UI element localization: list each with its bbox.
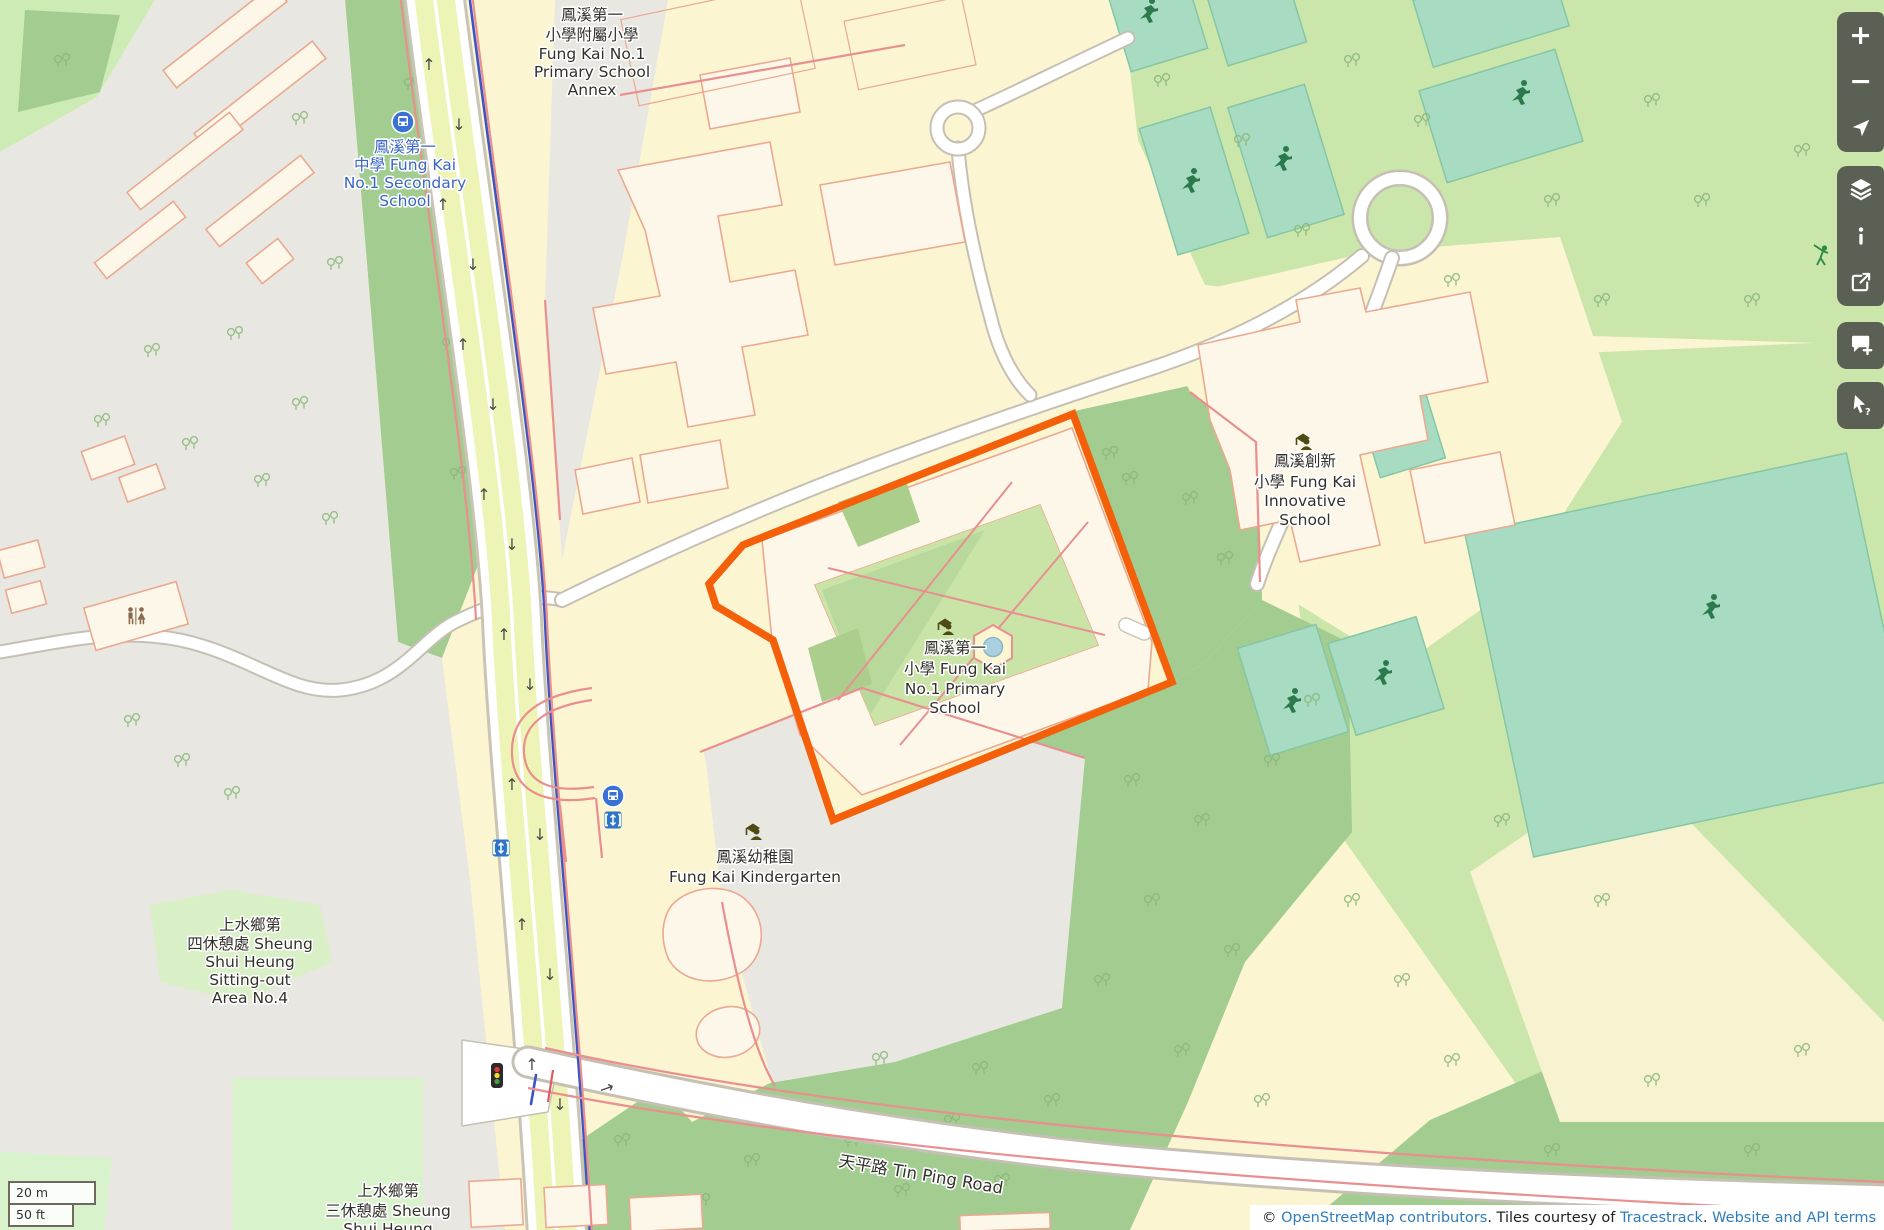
tiles-courtesy-text: . Tiles courtesy of: [1487, 1210, 1620, 1226]
layers-button[interactable]: [1837, 166, 1884, 213]
svg-text:↓: ↓: [533, 825, 546, 844]
share-icon: [1849, 271, 1872, 294]
svg-text:中學 Fung Kai: 中學 Fung Kai: [354, 155, 456, 174]
svg-text:↓: ↓: [523, 675, 536, 694]
svg-text:三休憩處 Sheung: 三休憩處 Sheung: [325, 1202, 451, 1220]
add-note-button[interactable]: [1837, 322, 1884, 369]
scale-bar: 20 m 50 ft: [8, 1181, 96, 1227]
attribution-bar: © OpenStreetMap contributors. Tiles cour…: [1250, 1205, 1884, 1230]
svg-text:↓: ↓: [486, 395, 499, 414]
map-tools-group: [1837, 166, 1884, 306]
terms-link[interactable]: Website and API terms: [1712, 1210, 1876, 1226]
copyright-symbol: ©: [1262, 1210, 1281, 1226]
minus-icon: −: [1849, 68, 1872, 95]
info-icon: [1850, 225, 1872, 247]
svg-text:School: School: [1279, 511, 1330, 529]
svg-text:鳳溪創新: 鳳溪創新: [1274, 452, 1336, 470]
layers-icon: [1849, 177, 1873, 201]
svg-text:Annex: Annex: [568, 81, 617, 99]
query-group: ?: [1837, 382, 1884, 429]
svg-text:School: School: [379, 192, 430, 210]
svg-text:四休憩處 Sheung: 四休憩處 Sheung: [187, 935, 313, 953]
svg-text:小學 Fung Kai: 小學 Fung Kai: [1254, 472, 1356, 491]
svg-text:↓: ↓: [505, 535, 518, 554]
svg-text:小學附屬小學: 小學附屬小學: [545, 25, 638, 44]
svg-text:鳳溪第一: 鳳溪第一: [924, 639, 986, 657]
query-features-button[interactable]: ?: [1837, 382, 1884, 429]
svg-text:Innovative: Innovative: [1264, 492, 1345, 510]
svg-text:上水鄉第: 上水鄉第: [219, 916, 281, 934]
tracestrack-link[interactable]: Tracestrack: [1620, 1210, 1703, 1226]
svg-text:鳳溪第一: 鳳溪第一: [374, 138, 436, 156]
cursor-question-icon: ?: [1849, 393, 1873, 417]
note-group: [1837, 322, 1884, 369]
svg-text:↓: ↓: [466, 255, 479, 274]
dot-text: .: [1703, 1210, 1712, 1226]
svg-text:School: School: [929, 699, 980, 717]
svg-text:↓: ↓: [452, 115, 465, 134]
share-button[interactable]: [1837, 259, 1884, 306]
svg-text:鳳溪幼稚園: 鳳溪幼稚園: [716, 848, 794, 866]
svg-text:↑: ↑: [515, 915, 528, 934]
traffic-signal-icon: [491, 1063, 503, 1088]
svg-text:上水鄉第: 上水鄉第: [357, 1182, 419, 1200]
zoom-out-button[interactable]: −: [1837, 59, 1884, 106]
svg-text:↓: ↓: [553, 1095, 566, 1114]
comment-plus-icon: [1849, 333, 1873, 357]
zoom-in-button[interactable]: +: [1837, 12, 1884, 59]
scale-metric: 20 m: [8, 1181, 96, 1205]
svg-text:↑: ↑: [477, 485, 490, 504]
zoom-control-group: + −: [1837, 12, 1884, 152]
svg-text:?: ?: [1865, 407, 1871, 417]
svg-text:Fung Kai Kindergarten: Fung Kai Kindergarten: [669, 868, 841, 886]
map-information-button[interactable]: [1837, 213, 1884, 260]
svg-text:Primary School: Primary School: [534, 63, 650, 81]
svg-text:Shui Heung: Shui Heung: [343, 1220, 432, 1230]
svg-text:↑: ↑: [436, 195, 449, 214]
svg-text:↑: ↑: [505, 775, 518, 794]
navigation-arrow-icon: [1850, 117, 1872, 139]
svg-text:↑: ↑: [422, 55, 435, 74]
map-canvas[interactable]: ↑↑↑↑↑↑↑↑↓↓↓↓↓↓↓↓ ↗: [0, 0, 1884, 1230]
locate-button[interactable]: [1837, 105, 1884, 152]
svg-text:Sitting-out: Sitting-out: [209, 971, 291, 989]
svg-text:↑: ↑: [525, 1055, 538, 1074]
svg-text:Area No.4: Area No.4: [212, 989, 288, 1007]
osm-contributors-link[interactable]: OpenStreetMap contributors: [1281, 1210, 1487, 1226]
plus-icon: +: [1849, 22, 1872, 49]
svg-text:↑: ↑: [456, 335, 469, 354]
svg-text:小學 Fung Kai: 小學 Fung Kai: [904, 659, 1006, 678]
svg-text:鳳溪第一: 鳳溪第一: [561, 6, 623, 24]
svg-text:No.1 Secondary: No.1 Secondary: [344, 174, 467, 192]
map-viewport[interactable]: ↑↑↑↑↑↑↑↑↓↓↓↓↓↓↓↓ ↗: [0, 0, 1884, 1230]
svg-text:Fung Kai No.1: Fung Kai No.1: [539, 45, 646, 63]
svg-text:↓: ↓: [543, 965, 556, 984]
scale-imperial: 50 ft: [8, 1205, 74, 1227]
svg-text:No.1 Primary: No.1 Primary: [905, 680, 1005, 698]
svg-text:↑: ↑: [497, 625, 510, 644]
svg-text:Shui Heung: Shui Heung: [205, 953, 294, 971]
